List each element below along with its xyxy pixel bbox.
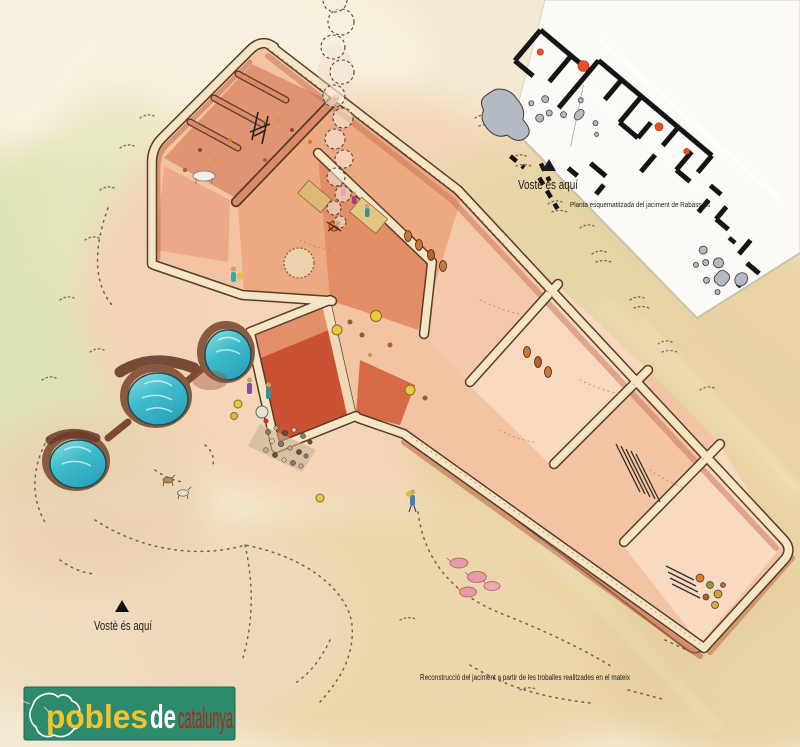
water-cistern-middle [124,368,188,425]
inset-caption: Planta esquematitzada del jaciment de Ra… [570,202,710,209]
logo-word-catalunya: catalunya [178,702,233,735]
inset-you-are-here-label: Vostè és aquí [518,178,578,192]
site-panel: Vostè és aquí Planta esquematitzada del … [0,0,800,747]
person-hearth-3 [365,204,370,217]
logo-word-de: de [150,698,176,735]
person-entrance-1 [247,378,252,395]
ground-you-are-here-label: Vostè és aquí [94,619,152,633]
footer-caption: Reconstrucció del jaciment a partir de l… [420,673,630,682]
pobles-de-catalunya-logo: pobles de catalunya [20,687,235,740]
reconstruction-illustration: Vostè és aquí Planta esquematitzada del … [0,0,800,747]
person-hearth-2 [352,192,357,204]
water-cistern-lower [46,433,106,488]
person-entrance-2 [266,383,271,400]
logo-word-pobles: pobles [46,698,148,735]
